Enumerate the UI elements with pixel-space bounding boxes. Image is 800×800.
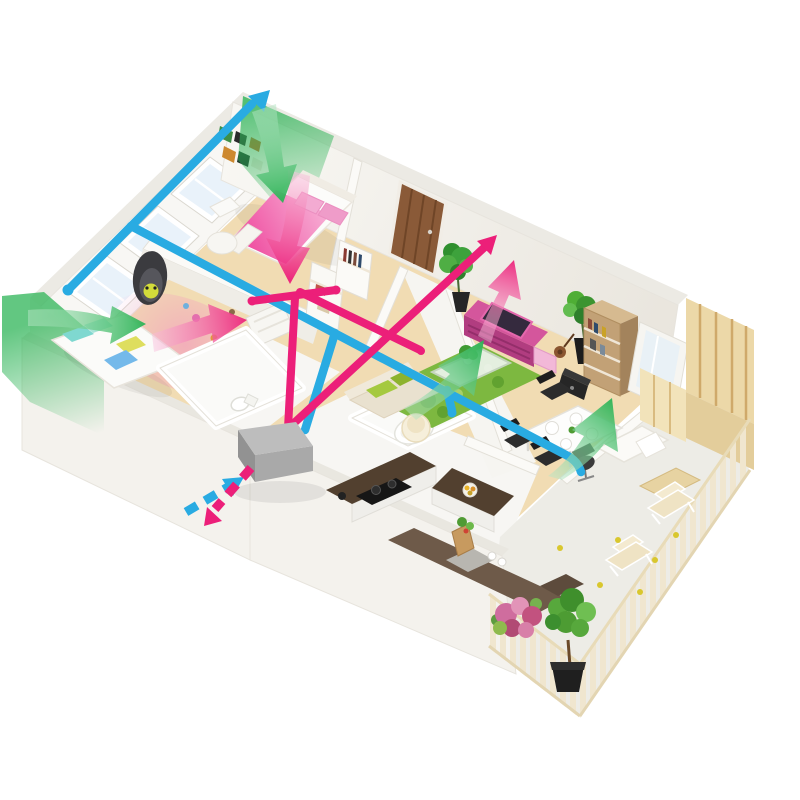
plate-2	[570, 413, 582, 425]
plate-1	[546, 422, 559, 435]
door-handle	[428, 230, 432, 234]
apartment-ventilation-illustration	[0, 0, 800, 800]
draped-side-table	[207, 232, 237, 254]
plush-toy	[144, 284, 159, 299]
cup-2	[498, 558, 506, 566]
plate-4	[561, 439, 572, 450]
kettle	[338, 492, 346, 500]
cup-1	[488, 552, 496, 560]
isometric-floorplan-svg	[0, 0, 800, 800]
supply-duct-end-cap	[63, 285, 74, 296]
